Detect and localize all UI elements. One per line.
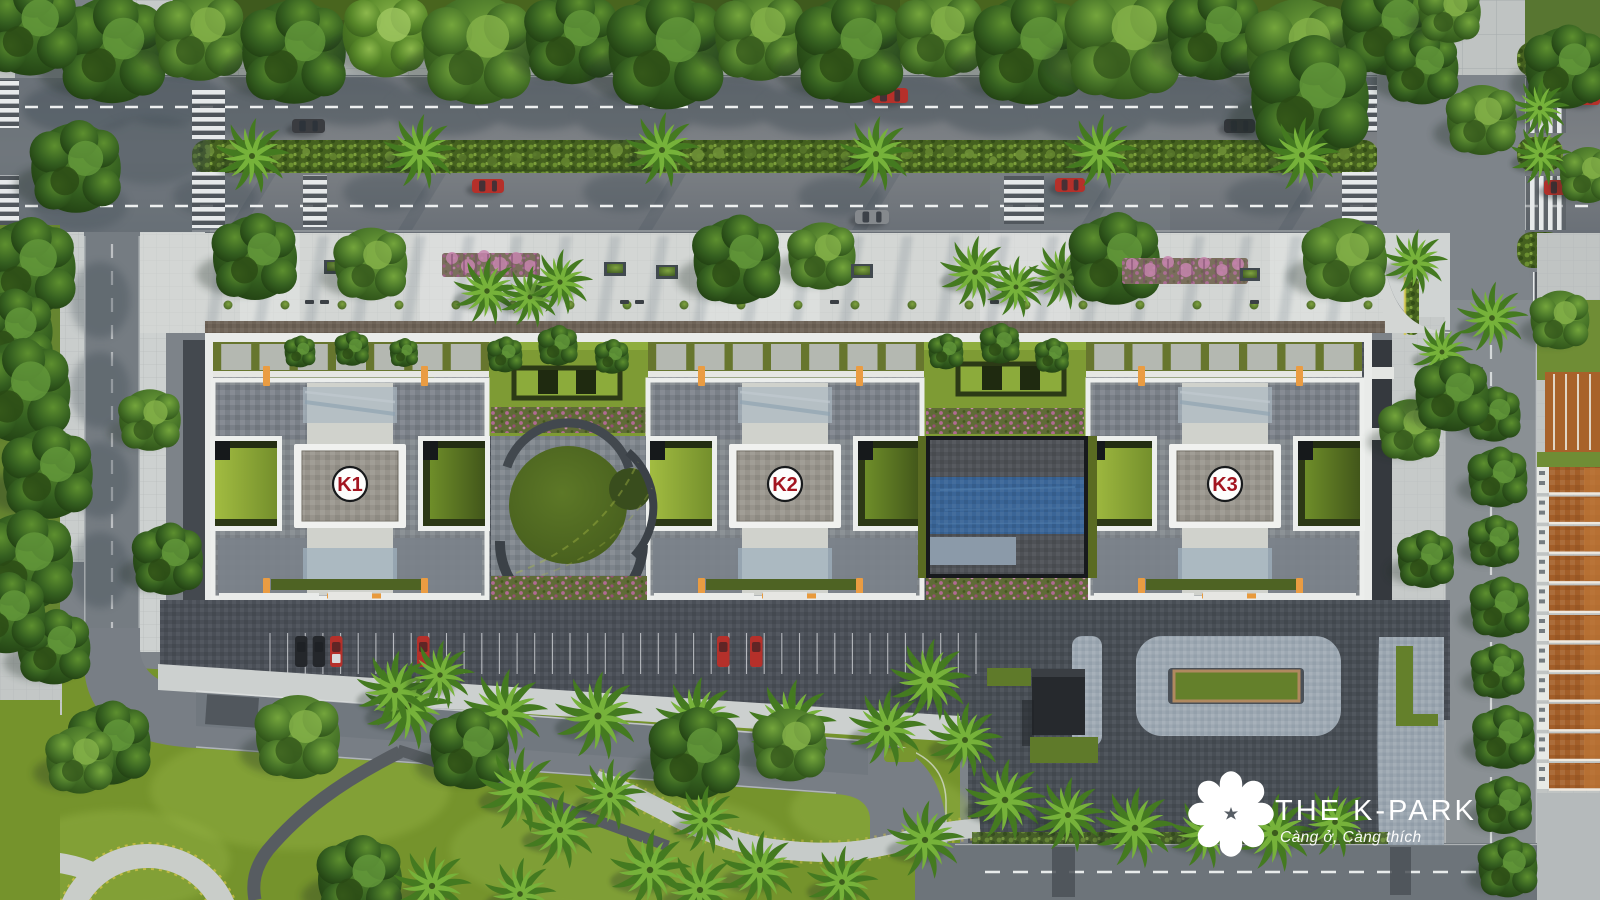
svg-text:Càng ở, Càng thích: Càng ở, Càng thích (1280, 829, 1422, 846)
svg-text:THE K-PARK: THE K-PARK (1275, 795, 1477, 827)
svg-text:K2: K2 (772, 474, 798, 496)
svg-text:K3: K3 (1212, 474, 1238, 496)
svg-text:K1: K1 (337, 474, 363, 496)
